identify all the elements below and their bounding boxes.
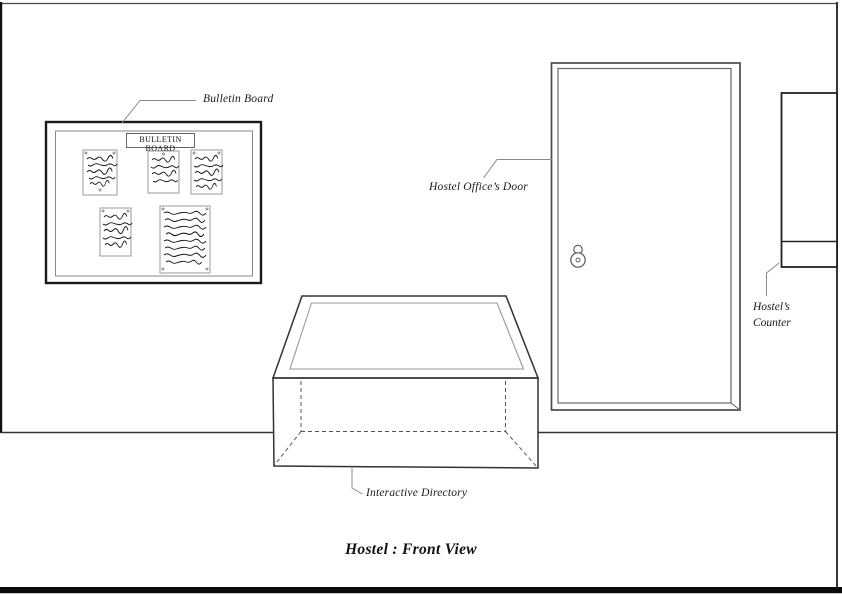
wall-right-edge (836, 2, 838, 592)
drawing-canvas: Bulletin Board BULLETIN BOARD Hostel Off… (0, 0, 842, 595)
hostel-counter (782, 93, 838, 267)
directory-label: Interactive Directory (366, 487, 467, 499)
bulletin-board-label: Bulletin Board (203, 93, 273, 105)
hostel-office-door (552, 63, 741, 410)
counter-label: Hostel’s Counter (753, 299, 791, 331)
counter-leader (767, 263, 780, 296)
drawing-title: Hostel : Front View (291, 541, 531, 559)
office-door-leader (484, 160, 553, 179)
wall-left-edge (0, 2, 2, 433)
bulletin-board-header: BULLETIN BOARD (126, 135, 195, 153)
office-door-label: Hostel Office’s Door (429, 181, 528, 193)
page-bottom-bar (0, 587, 842, 593)
interactive-directory (273, 296, 538, 468)
bulletin-board-leader (122, 101, 196, 124)
directory-leader (352, 468, 363, 494)
counter-label-line2: Counter (753, 315, 791, 331)
counter-label-line1: Hostel’s (753, 299, 791, 315)
pinned-note (160, 206, 210, 273)
hostel-front-view-drawing (0, 0, 842, 595)
